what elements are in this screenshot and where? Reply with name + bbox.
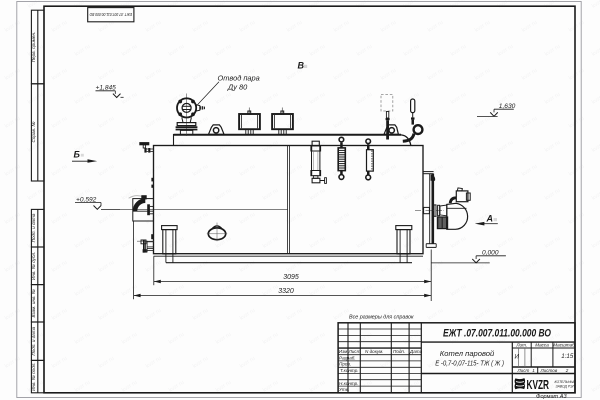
- svg-text:kvzr ru: kvzr ru: [192, 212, 209, 226]
- svg-text:kvzr ru: kvzr ru: [192, 68, 209, 82]
- svg-text:kvzr ru: kvzr ru: [544, 188, 561, 202]
- svg-text:kvzr ru: kvzr ru: [497, 188, 514, 202]
- svg-text:kvzr ru: kvzr ru: [450, 92, 467, 106]
- svg-text:kvzr ru: kvzr ru: [521, 260, 538, 274]
- svg-text:kvzr ru: kvzr ru: [239, 260, 256, 274]
- svg-text:kvzr ru: kvzr ru: [98, 212, 115, 226]
- svg-text:kvzr ru: kvzr ru: [121, 92, 138, 106]
- svg-text:kvzr ru: kvzr ru: [450, 284, 467, 298]
- svg-text:kvzr ru: kvzr ru: [74, 332, 91, 346]
- svg-text:kvzr ru: kvzr ru: [215, 188, 232, 202]
- svg-text:kvzr ru: kvzr ru: [262, 380, 279, 394]
- svg-text:Лист: Лист: [517, 368, 530, 373]
- svg-text:kvzr ru: kvzr ru: [356, 380, 373, 394]
- svg-text:kvzr ru: kvzr ru: [403, 188, 420, 202]
- svg-text:kvzr ru: kvzr ru: [474, 308, 491, 322]
- svg-text:kvzr ru: kvzr ru: [145, 116, 162, 130]
- svg-text:kvzr ru: kvzr ru: [286, 116, 303, 130]
- svg-text:kvzr ru: kvzr ru: [98, 164, 115, 178]
- svg-text:kvzr ru: kvzr ru: [521, 20, 538, 34]
- svg-text:kvzr ru: kvzr ru: [51, 356, 68, 370]
- svg-text:kvzr ru: kvzr ru: [262, 44, 279, 58]
- svg-text:Пров.: Пров.: [339, 362, 351, 367]
- svg-text:Лит.: Лит.: [515, 343, 527, 348]
- svg-text:kvzr ru: kvzr ru: [521, 212, 538, 226]
- svg-text:kvzr ru: kvzr ru: [497, 284, 514, 298]
- svg-text:kvzr ru: kvzr ru: [380, 20, 397, 34]
- svg-text:kvzr ru: kvzr ru: [239, 164, 256, 178]
- svg-text:kvzr ru: kvzr ru: [309, 236, 326, 250]
- svg-text:kvzr ru: kvzr ru: [51, 68, 68, 82]
- svg-text:kvzr ru: kvzr ru: [497, 236, 514, 250]
- svg-text:kvzr ru: kvzr ru: [309, 188, 326, 202]
- svg-text:kvzr ru: kvzr ru: [356, 188, 373, 202]
- svg-text:kvzr ru: kvzr ru: [239, 20, 256, 34]
- svg-text:kvzr ru: kvzr ru: [192, 308, 209, 322]
- svg-text:kvzr ru: kvzr ru: [286, 164, 303, 178]
- svg-text:kvzr ru: kvzr ru: [403, 44, 420, 58]
- svg-text:kvzr ru: kvzr ru: [239, 356, 256, 370]
- svg-text:kvzr ru: kvzr ru: [333, 212, 350, 226]
- svg-text:kvzr ru: kvzr ru: [168, 140, 185, 154]
- svg-text:kvzr ru: kvzr ru: [239, 212, 256, 226]
- svg-text:Утв.: Утв.: [339, 387, 349, 392]
- svg-text:Взам. инв. №: Взам. инв. №: [31, 289, 36, 317]
- svg-text:kvzr ru: kvzr ru: [568, 68, 585, 82]
- svg-text:kvzr ru: kvzr ru: [262, 140, 279, 154]
- svg-text:kvzr ru: kvzr ru: [215, 44, 232, 58]
- svg-text:kvzr ru: kvzr ru: [4, 260, 21, 274]
- svg-text:kvzr ru: kvzr ru: [591, 44, 600, 58]
- svg-text:kvzr ru: kvzr ru: [4, 308, 21, 322]
- svg-text:kvzr ru: kvzr ru: [474, 68, 491, 82]
- svg-text:kvzr ru: kvzr ru: [145, 68, 162, 82]
- svg-text:kvzr ru: kvzr ru: [380, 212, 397, 226]
- svg-text:kvzr ru: kvzr ru: [121, 332, 138, 346]
- svg-text:kvzr ru: kvzr ru: [192, 356, 209, 370]
- svg-text:kvzr ru: kvzr ru: [591, 140, 600, 154]
- svg-text:kvzr ru: kvzr ru: [98, 68, 115, 82]
- svg-text:kvzr ru: kvzr ru: [51, 116, 68, 130]
- svg-text:kvzr ru: kvzr ru: [497, 44, 514, 58]
- svg-text:kvzr ru: kvzr ru: [474, 20, 491, 34]
- svg-text:kvzr ru: kvzr ru: [403, 380, 420, 394]
- svg-text:kvzr ru: kvzr ru: [497, 380, 514, 394]
- svg-text:kvzr ru: kvzr ru: [121, 140, 138, 154]
- svg-text:kvzr ru: kvzr ru: [333, 260, 350, 274]
- svg-text:Б: Б: [74, 150, 81, 160]
- svg-text:kvzr ru: kvzr ru: [309, 380, 326, 394]
- svg-text:Т.контр.: Т.контр.: [340, 368, 359, 373]
- svg-text:Листов: Листов: [540, 368, 558, 373]
- svg-text:kvzr ru: kvzr ru: [27, 92, 44, 106]
- svg-text:kvzr ru: kvzr ru: [427, 20, 444, 34]
- svg-text:Справ. №: Справ. №: [31, 122, 36, 143]
- svg-text:1: 1: [532, 368, 535, 373]
- svg-text:3320: 3320: [278, 288, 294, 295]
- svg-text:ЕЖТ .07.007.011.00.000 ВО: ЕЖТ .07.007.011.00.000 ВО: [443, 328, 552, 340]
- svg-text:kvzr ru: kvzr ru: [356, 236, 373, 250]
- svg-text:2: 2: [565, 368, 569, 373]
- svg-text:kvzr ru: kvzr ru: [74, 380, 91, 394]
- svg-text:kvzr ru: kvzr ru: [51, 20, 68, 34]
- svg-text:kvzr ru: kvzr ru: [215, 92, 232, 106]
- svg-text:Н.контр.: Н.контр.: [339, 381, 358, 386]
- svg-text:kvzr ru: kvzr ru: [309, 92, 326, 106]
- svg-text:kvzr ru: kvzr ru: [568, 308, 585, 322]
- svg-text:KVZR: KVZR: [527, 377, 550, 392]
- svg-text:kvzr ru: kvzr ru: [168, 44, 185, 58]
- svg-text:kvzr ru: kvzr ru: [168, 380, 185, 394]
- svg-text:kvzr ru: kvzr ru: [568, 164, 585, 178]
- svg-text:kvzr ru: kvzr ru: [4, 68, 21, 82]
- svg-text:kvzr ru: kvzr ru: [168, 332, 185, 346]
- svg-text:Подп. и дата: Подп. и дата: [31, 213, 36, 242]
- svg-text:kvzr ru: kvzr ru: [121, 380, 138, 394]
- svg-text:kvzr ru: kvzr ru: [333, 308, 350, 322]
- svg-text:1:15: 1:15: [561, 353, 574, 360]
- svg-text:kvzr ru: kvzr ru: [591, 380, 600, 394]
- svg-text:kvzr ru: kvzr ru: [427, 68, 444, 82]
- svg-text:kvzr ru: kvzr ru: [591, 284, 600, 298]
- svg-text:kvzr ru: kvzr ru: [544, 284, 561, 298]
- svg-text:kvzr ru: kvzr ru: [591, 188, 600, 202]
- svg-text:kvzr ru: kvzr ru: [168, 236, 185, 250]
- svg-text:kvzr ru: kvzr ru: [568, 212, 585, 226]
- svg-text:kvzr ru: kvzr ru: [356, 332, 373, 346]
- svg-text:kvzr ru: kvzr ru: [544, 92, 561, 106]
- svg-text:kvzr ru: kvzr ru: [74, 284, 91, 298]
- svg-text:0,000: 0,000: [482, 249, 499, 256]
- svg-text:kvzr ru: kvzr ru: [403, 332, 420, 346]
- svg-text:kvzr ru: kvzr ru: [427, 260, 444, 274]
- svg-text:kvzr ru: kvzr ru: [591, 92, 600, 106]
- svg-text:Ду 80: Ду 80: [227, 82, 248, 91]
- svg-text:kvzr ru: kvzr ru: [215, 140, 232, 154]
- svg-text:kvzr ru: kvzr ru: [215, 332, 232, 346]
- svg-text:kvzr ru: kvzr ru: [121, 44, 138, 58]
- svg-text:kvzr ru: kvzr ru: [168, 188, 185, 202]
- svg-text:kvzr ru: kvzr ru: [356, 44, 373, 58]
- svg-text:kvzr ru: kvzr ru: [74, 44, 91, 58]
- svg-text:kvzr ru: kvzr ru: [380, 260, 397, 274]
- svg-text:kvzr ru: kvzr ru: [450, 236, 467, 250]
- svg-text:kvzr ru: kvzr ru: [544, 44, 561, 58]
- svg-text:kvzr ru: kvzr ru: [4, 212, 21, 226]
- svg-text:kvzr ru: kvzr ru: [74, 92, 91, 106]
- svg-text:kvzr ru: kvzr ru: [380, 164, 397, 178]
- svg-text:kvzr ru: kvzr ru: [333, 68, 350, 82]
- svg-text:kvzr ru: kvzr ru: [98, 308, 115, 322]
- svg-text:kvzr ru: kvzr ru: [356, 92, 373, 106]
- svg-text:kvzr ru: kvzr ru: [474, 116, 491, 130]
- svg-text:kvzr ru: kvzr ru: [27, 188, 44, 202]
- svg-text:kvzr ru: kvzr ru: [286, 308, 303, 322]
- svg-text:Подп. и дата: Подп. и дата: [31, 326, 36, 355]
- svg-text:kvzr ru: kvzr ru: [51, 308, 68, 322]
- svg-text:kvzr ru: kvzr ru: [450, 44, 467, 58]
- svg-text:kvzr ru: kvzr ru: [474, 164, 491, 178]
- svg-text:kvzr ru: kvzr ru: [262, 332, 279, 346]
- svg-text:А: А: [486, 214, 494, 224]
- svg-text:Масштаб: Масштаб: [553, 343, 575, 348]
- svg-text:И: И: [515, 354, 520, 361]
- svg-text:kvzr ru: kvzr ru: [286, 260, 303, 274]
- svg-text:Инв. № дубл.: Инв. № дубл.: [31, 252, 36, 280]
- svg-text:kvzr ru: kvzr ru: [286, 356, 303, 370]
- svg-text:kvzr ru: kvzr ru: [4, 20, 21, 34]
- svg-text:kvzr ru: kvzr ru: [262, 92, 279, 106]
- svg-text:kvzr ru: kvzr ru: [591, 332, 600, 346]
- svg-text:Подп.: Подп.: [393, 349, 405, 354]
- svg-text:Все размеры для справок: Все размеры для справок: [349, 315, 414, 321]
- svg-text:Котел паровой: Котел паровой: [440, 349, 495, 358]
- svg-text:kvzr ru: kvzr ru: [145, 20, 162, 34]
- svg-text:kvzr ru: kvzr ru: [521, 164, 538, 178]
- svg-text:kvzr ru: kvzr ru: [192, 260, 209, 274]
- svg-text:kvzr ru: kvzr ru: [145, 356, 162, 370]
- svg-text:kvzr ru: kvzr ru: [145, 308, 162, 322]
- svg-text:Отвод пара: Отвод пара: [218, 74, 260, 83]
- svg-text:kvzr ru: kvzr ru: [192, 20, 209, 34]
- svg-text:kvzr ru: kvzr ru: [568, 260, 585, 274]
- svg-text:kvzr ru: kvzr ru: [74, 236, 91, 250]
- svg-text:Разраб.: Разраб.: [339, 355, 356, 360]
- svg-text:kvzr ru: kvzr ru: [4, 116, 21, 130]
- svg-text:kvzr ru: kvzr ru: [427, 308, 444, 322]
- svg-text:Формат А3: Формат А3: [536, 394, 567, 400]
- svg-text:kvzr ru: kvzr ru: [427, 116, 444, 130]
- svg-text:kvzr ru: kvzr ru: [568, 20, 585, 34]
- svg-text:kvzr ru: kvzr ru: [497, 140, 514, 154]
- svg-text:kvzr ru: kvzr ru: [568, 116, 585, 130]
- svg-text:kvzr ru: kvzr ru: [380, 68, 397, 82]
- svg-text:kvzr ru: kvzr ru: [239, 308, 256, 322]
- svg-text:kvzr ru: kvzr ru: [403, 236, 420, 250]
- svg-text:kvzr ru: kvzr ru: [309, 44, 326, 58]
- svg-text:kvzr ru: kvzr ru: [4, 164, 21, 178]
- svg-text:kvzr ru: kvzr ru: [544, 236, 561, 250]
- svg-text:kvzr ru: kvzr ru: [286, 20, 303, 34]
- svg-text:kvzr ru: kvzr ru: [121, 236, 138, 250]
- svg-text:kvzr ru: kvzr ru: [521, 116, 538, 130]
- svg-text:kvzr ru: kvzr ru: [286, 212, 303, 226]
- svg-text:Инв. № подл.: Инв. № подл.: [31, 362, 36, 391]
- svg-text:kvzr ru: kvzr ru: [4, 356, 21, 370]
- svg-text:kvzr ru: kvzr ru: [521, 308, 538, 322]
- svg-text:kvzr ru: kvzr ru: [192, 164, 209, 178]
- svg-text:kvzr ru: kvzr ru: [262, 236, 279, 250]
- svg-text:kvzr ru: kvzr ru: [521, 68, 538, 82]
- svg-text:kvzr ru: kvzr ru: [98, 260, 115, 274]
- svg-text:kvzr ru: kvzr ru: [309, 332, 326, 346]
- svg-text:kvzr ru: kvzr ru: [333, 20, 350, 34]
- svg-text:Дата: Дата: [409, 349, 423, 354]
- svg-text:kvzr ru: kvzr ru: [215, 380, 232, 394]
- svg-text:kvzr ru: kvzr ru: [333, 116, 350, 130]
- svg-text:kvzr ru: kvzr ru: [450, 140, 467, 154]
- svg-text:kvzr ru: kvzr ru: [591, 0, 600, 10]
- svg-text:ЕЖТ .07.007.011.00.000 ВО: ЕЖТ .07.007.011.00.000 ВО: [89, 11, 132, 17]
- svg-text:kvzr ru: kvzr ru: [121, 188, 138, 202]
- svg-text:Е -0,7-0,07-115- ТЖ ( Ж ): Е -0,7-0,07-115- ТЖ ( Ж ): [435, 360, 504, 367]
- svg-text:kvzr ru: kvzr ru: [51, 164, 68, 178]
- svg-text:3095: 3095: [283, 274, 299, 281]
- svg-text:kvzr ru: kvzr ru: [51, 260, 68, 274]
- svg-text:kvzr ru: kvzr ru: [262, 188, 279, 202]
- svg-text:kvzr ru: kvzr ru: [450, 380, 467, 394]
- svg-text:В: В: [298, 60, 305, 70]
- svg-text:kvzr ru: kvzr ru: [98, 116, 115, 130]
- svg-text:N докум.: N докум.: [365, 349, 384, 354]
- svg-text:kvzr ru: kvzr ru: [98, 356, 115, 370]
- svg-text:Перв. примен.: Перв. примен.: [31, 32, 36, 63]
- svg-text:Изм Лист: Изм Лист: [339, 349, 361, 354]
- svg-text:kvzr ru: kvzr ru: [591, 236, 600, 250]
- svg-text:kvzr ru: kvzr ru: [544, 140, 561, 154]
- svg-text:Масса: Масса: [535, 343, 549, 348]
- svg-text:ЗАВОД РЭП: ЗАВОД РЭП: [556, 384, 576, 388]
- svg-text:kvzr ru: kvzr ru: [51, 212, 68, 226]
